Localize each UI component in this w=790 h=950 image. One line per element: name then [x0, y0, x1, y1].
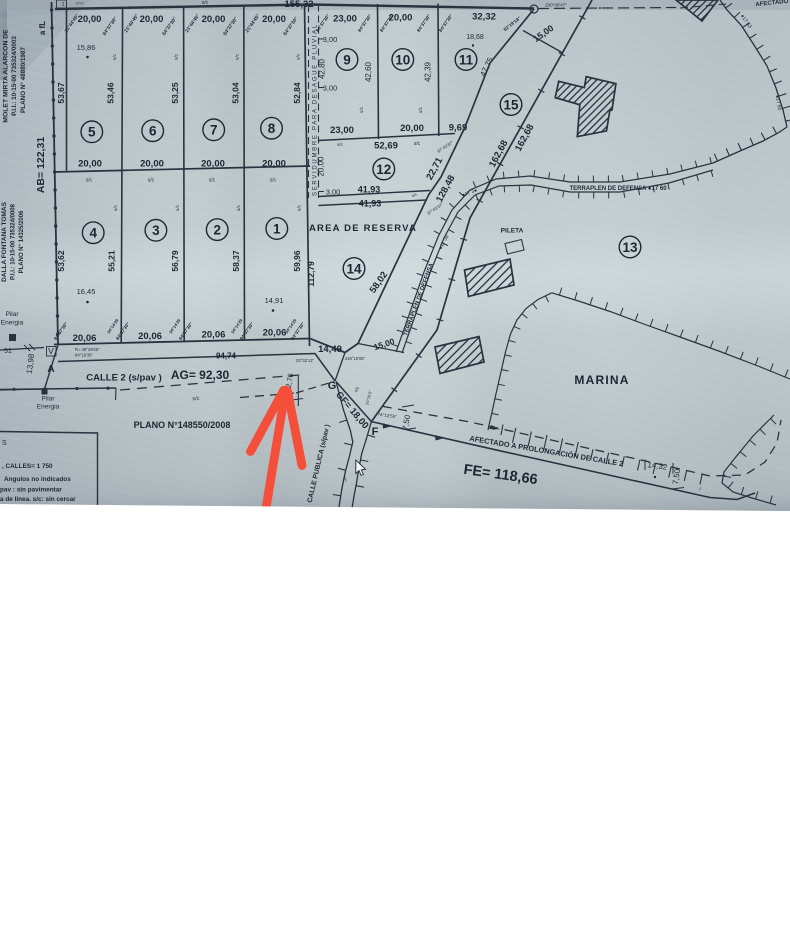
svg-text:Pilar: Pilar	[5, 311, 19, 318]
svg-text:53,04: 53,04	[231, 82, 241, 104]
svg-text:15: 15	[503, 97, 519, 112]
svg-text:MARINA: MARINA	[574, 373, 629, 387]
svg-text:TERRAPLEN DE DEFENSA ●17 60: TERRAPLEN DE DEFENSA ●17 60	[569, 186, 667, 192]
svg-text:18,68: 18,68	[466, 34, 484, 41]
svg-text:s/c: s/c	[359, 106, 365, 113]
svg-text:20,00: 20,00	[140, 159, 164, 170]
svg-text:20,00: 20,00	[202, 14, 226, 25]
svg-text:Energia: Energia	[1, 320, 24, 327]
svg-text:12: 12	[376, 162, 391, 177]
svg-text:20,00: 20,00	[389, 13, 413, 24]
svg-text:s/c: s/c	[414, 141, 421, 147]
svg-text:14,49: 14,49	[318, 344, 342, 355]
svg-text:248°15'06": 248°15'06"	[345, 356, 366, 361]
svg-text:23,00: 23,00	[330, 125, 354, 136]
svg-text:16,45: 16,45	[77, 287, 96, 296]
svg-text:s/c: s/c	[175, 204, 181, 211]
svg-text:s/c: s/c	[174, 53, 180, 60]
svg-text:s/c: s/c	[148, 178, 155, 184]
svg-text:s/c: s/c	[113, 204, 119, 211]
svg-text:R= 49°29'25": R= 49°29'25"	[75, 347, 100, 352]
svg-text:59,96: 59,96	[292, 250, 302, 272]
svg-text:53,67: 53,67	[56, 82, 66, 104]
svg-text:14: 14	[346, 261, 362, 276]
svg-text:CALLE 2 (s/pav ): CALLE 2 (s/pav )	[86, 373, 162, 384]
svg-text:23°32'13": 23°32'13"	[296, 358, 314, 363]
svg-text:s/c: s/c	[192, 396, 200, 402]
svg-text:1: 1	[62, 2, 65, 8]
svg-text:84°19'36": 84°19'36"	[75, 353, 93, 358]
svg-text:23,00: 23,00	[333, 14, 357, 25]
svg-text:20,00: 20,00	[317, 156, 326, 177]
svg-text:V: V	[48, 346, 54, 356]
svg-text:56,79: 56,79	[170, 250, 180, 272]
svg-text:20,06: 20,06	[73, 333, 97, 344]
svg-text:20,00: 20,00	[140, 14, 164, 25]
svg-text:s/c: s/c	[337, 142, 344, 147]
svg-text:3,00: 3,00	[326, 188, 341, 197]
svg-text:AB= 122,31: AB= 122,31	[35, 137, 47, 193]
svg-text:20,06: 20,06	[138, 331, 162, 342]
svg-text:58,37: 58,37	[231, 250, 241, 272]
svg-text:5: 5	[88, 125, 96, 140]
svg-text:PLANO N°148550/2008: PLANO N°148550/2008	[134, 420, 231, 430]
svg-text:3,00: 3,00	[323, 35, 338, 44]
svg-text:11: 11	[459, 52, 474, 67]
svg-text:10: 10	[395, 52, 410, 67]
svg-text:8: 8	[268, 121, 276, 136]
svg-text:41,93: 41,93	[358, 185, 381, 195]
svg-text:20,00: 20,00	[78, 14, 102, 25]
svg-text:200°40'47": 200°40'47"	[545, 3, 567, 8]
svg-text:PILETA: PILETA	[501, 228, 524, 235]
svg-text:, CALLES= 1 750: , CALLES= 1 750	[2, 463, 53, 470]
svg-text:20,00: 20,00	[400, 123, 424, 134]
svg-text:4: 4	[89, 226, 97, 241]
svg-text:9: 9	[343, 52, 351, 67]
svg-text:7: 7	[210, 123, 218, 138]
svg-text:pav : sin pavimentar: pav : sin pavimentar	[0, 487, 62, 494]
svg-text:52,69: 52,69	[374, 141, 398, 152]
svg-text:13: 13	[622, 240, 638, 255]
svg-text:42,39: 42,39	[424, 61, 433, 82]
svg-text:32,32: 32,32	[472, 12, 496, 23]
svg-text:3: 3	[152, 223, 160, 238]
svg-text:P.I.I.: 10-15-00 735324/0008: P.I.I.: 10-15-00 735324/0008	[11, 203, 17, 280]
svg-text:14,91: 14,91	[265, 296, 284, 305]
svg-text:A: A	[47, 364, 54, 375]
svg-text:41,93: 41,93	[359, 199, 382, 209]
svg-text:a fL: a fL	[38, 21, 47, 35]
svg-text:Pilar: Pilar	[41, 396, 55, 403]
svg-text:s/c: s/c	[297, 204, 303, 211]
svg-text:155,32: 155,32	[284, 0, 313, 10]
svg-text:2: 2	[213, 222, 221, 237]
svg-text:G: G	[328, 380, 337, 392]
svg-text:s/c: s/c	[86, 178, 93, 184]
svg-text:53,62: 53,62	[56, 250, 66, 272]
svg-text:94,74: 94,74	[216, 352, 237, 361]
svg-text:AG= 92,30: AG= 92,30	[171, 368, 230, 382]
svg-text:s′r′e″: s′r′e″	[76, 1, 85, 6]
svg-text:Angulos no indicados: Angulos no indicados	[4, 476, 71, 483]
svg-text:20,06: 20,06	[263, 328, 287, 339]
svg-text:s/c: s/c	[296, 53, 302, 60]
svg-text:20,00: 20,00	[78, 159, 102, 170]
svg-text:s/c: s/c	[202, 0, 209, 6]
svg-text:6: 6	[149, 124, 157, 139]
svg-text:3,00: 3,00	[323, 84, 338, 93]
svg-text:s/c: s/c	[270, 178, 277, 184]
svg-text:AREA DE RESERVA: AREA DE RESERVA	[309, 223, 417, 234]
svg-text:53,46: 53,46	[106, 82, 116, 104]
svg-text:42,80: 42,80	[318, 58, 327, 79]
svg-text:s/c: s/c	[235, 53, 241, 60]
svg-text:52,84: 52,84	[292, 82, 302, 104]
svg-text:s/c: s/c	[209, 178, 216, 184]
svg-text:20,00: 20,00	[262, 159, 286, 170]
svg-text:15,86: 15,86	[77, 43, 96, 52]
svg-text:s/c: s/c	[418, 106, 424, 113]
svg-text:s/c: s/c	[236, 204, 242, 211]
svg-text:20,00: 20,00	[262, 14, 286, 25]
svg-text:MOLET MIRTA ALARCON DE: MOLET MIRTA ALARCON DE	[3, 29, 10, 123]
svg-text:P.I.I.: 10-15-00 735324/0003: P.I.I.: 10-15-00 735324/0003	[11, 36, 18, 116]
svg-text:DALLA FONTANA TOMAS: DALLA FONTANA TOMAS	[1, 201, 8, 281]
svg-text:a de linea. s/c: sin cercar: a de linea. s/c: sin cercar	[0, 496, 76, 503]
svg-text:51: 51	[4, 348, 12, 355]
svg-text:53,25: 53,25	[170, 82, 180, 104]
svg-text:1: 1	[273, 221, 281, 236]
svg-text:42,60: 42,60	[364, 61, 373, 82]
svg-text:112,79: 112,79	[306, 261, 316, 287]
svg-text:PLANO N° 14325/2006: PLANO N° 14325/2006	[19, 210, 25, 273]
svg-text:20,00: 20,00	[201, 159, 225, 170]
svg-text:Energia: Energia	[37, 404, 60, 411]
svg-text:s/c: s/c	[112, 53, 118, 60]
svg-text:20,06: 20,06	[202, 329, 226, 340]
svg-text:PLANO N° 48880/1987: PLANO N° 48880/1987	[19, 47, 27, 113]
svg-text:S: S	[2, 440, 7, 447]
svg-text:55,21: 55,21	[107, 250, 117, 272]
